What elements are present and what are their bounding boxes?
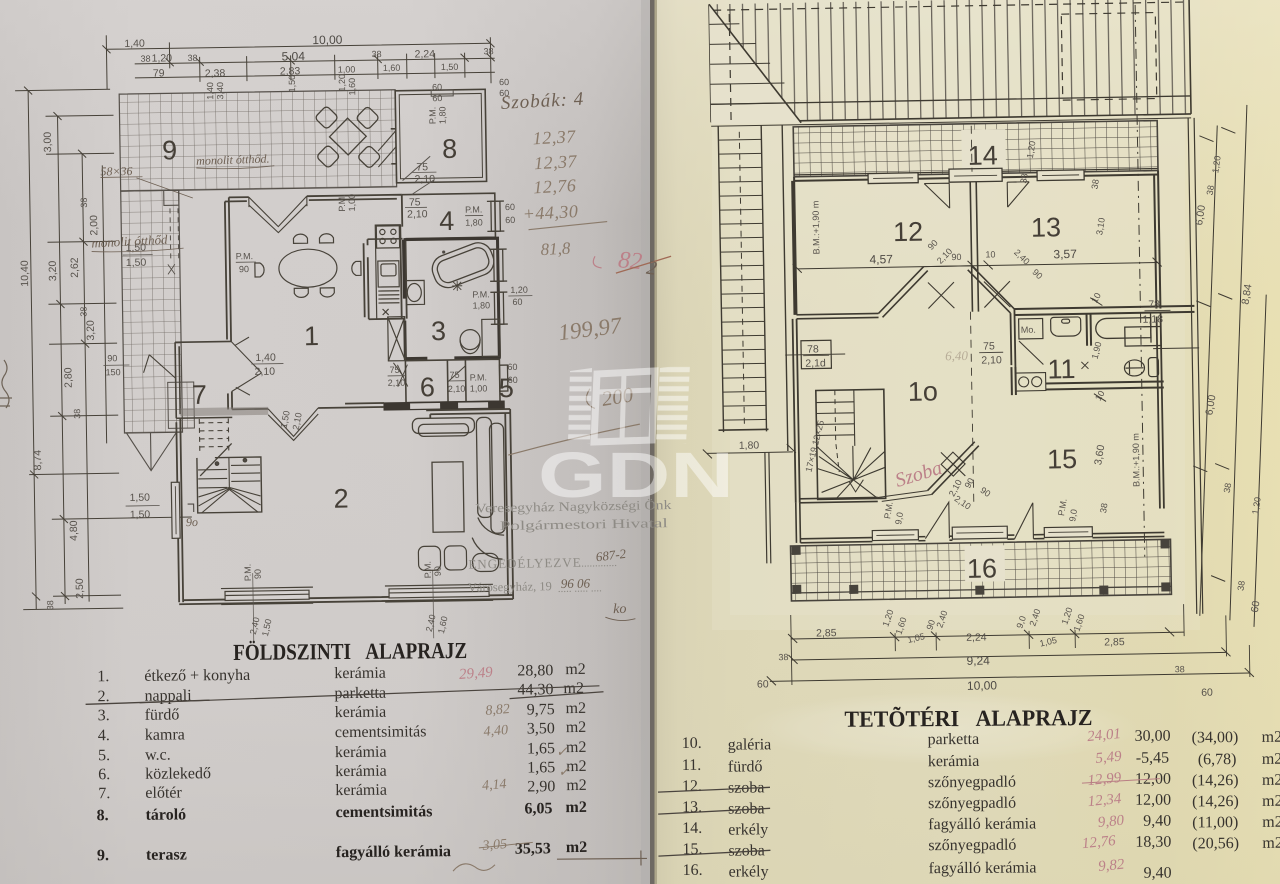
svg-text:38: 38	[1089, 178, 1100, 189]
svg-text:8,74: 8,74	[32, 450, 44, 471]
svg-text:150: 150	[105, 367, 120, 377]
svg-text:5,04: 5,04	[281, 49, 305, 63]
svg-text:12,37: 12,37	[532, 126, 576, 148]
svg-text:4: 4	[439, 206, 455, 236]
svg-text:cementsimitás: cementsimitás	[335, 803, 432, 821]
svg-text:2.: 2.	[97, 688, 109, 705]
svg-text:1,20: 1,20	[337, 74, 347, 92]
svg-text:38: 38	[1175, 664, 1185, 674]
svg-text:9,40: 9,40	[1143, 813, 1171, 830]
svg-text:4,14: 4,14	[481, 777, 507, 794]
svg-text:90: 90	[107, 353, 117, 363]
svg-text:60: 60	[505, 202, 515, 212]
svg-text:3,20: 3,20	[47, 260, 59, 281]
svg-text:9,40: 9,40	[1144, 865, 1172, 882]
svg-text:38: 38	[79, 198, 89, 208]
svg-text:12,34: 12,34	[1087, 791, 1123, 810]
svg-text:1,20: 1,20	[152, 52, 173, 64]
svg-text:kerámia: kerámia	[335, 782, 387, 799]
svg-text:16.: 16.	[682, 862, 702, 879]
svg-text:60: 60	[507, 362, 517, 372]
svg-text:Szobák: 4: Szobák: 4	[500, 89, 584, 114]
svg-text:3,00: 3,00	[42, 132, 54, 153]
svg-text:2,85: 2,85	[1104, 636, 1125, 648]
svg-text:4.: 4.	[98, 727, 110, 744]
svg-text:2,1d: 2,1d	[805, 357, 826, 369]
svg-text:kerámia: kerámia	[928, 753, 980, 770]
svg-text:81,8: 81,8	[540, 239, 571, 260]
svg-text:Polgármestori Hivatal: Polgármestori Hivatal	[500, 515, 669, 533]
svg-text:Városegyház, 19: Városegyház, 19	[468, 579, 552, 594]
svg-text:5,49: 5,49	[1095, 749, 1123, 767]
svg-text:9.: 9.	[97, 847, 109, 864]
svg-text:fagyálló kerámia: fagyálló kerámia	[928, 859, 1036, 877]
svg-text:2,00: 2,00	[88, 215, 100, 236]
svg-text:(34,00): (34,00)	[1192, 729, 1239, 746]
svg-text:60: 60	[1249, 600, 1263, 614]
svg-text:1,65: 1,65	[527, 740, 555, 757]
svg-text:m2: m2	[1262, 835, 1280, 852]
svg-text:9,82: 9,82	[1097, 857, 1125, 875]
svg-text:1,50: 1,50	[129, 492, 150, 504]
svg-text:1,40: 1,40	[255, 352, 276, 364]
svg-text:18,30: 18,30	[1135, 834, 1171, 851]
svg-text:kamra: kamra	[145, 726, 185, 743]
svg-text:11: 11	[1047, 354, 1076, 384]
svg-text:(20,56): (20,56)	[1192, 835, 1239, 852]
svg-text:2: 2	[333, 484, 349, 514]
svg-text:38: 38	[188, 53, 198, 63]
svg-text:60: 60	[1201, 687, 1213, 699]
svg-text:38: 38	[1205, 184, 1216, 195]
svg-text:9,0: 9,0	[893, 511, 905, 525]
svg-text:3.: 3.	[98, 707, 110, 724]
svg-text:Mo.: Mo.	[1021, 325, 1036, 335]
svg-text:m2: m2	[566, 839, 587, 856]
svg-text:ko: ko	[613, 602, 626, 617]
svg-text:erkély: erkély	[728, 821, 768, 838]
svg-text:75: 75	[389, 365, 399, 375]
svg-text:erkély: erkély	[729, 863, 769, 880]
svg-text:15: 15	[1047, 444, 1078, 475]
svg-text:P.M.: P.M.	[427, 107, 437, 124]
svg-text:12,37: 12,37	[534, 151, 578, 173]
svg-text:m2: m2	[565, 661, 586, 678]
svg-text:1,00: 1,00	[338, 64, 356, 74]
svg-text:..... ..... ....: ..... ..... ....	[558, 582, 602, 595]
svg-text:38: 38	[483, 46, 493, 56]
svg-text:tároló: tároló	[145, 806, 186, 823]
svg-text:1,65: 1,65	[527, 759, 555, 776]
svg-text:2,80: 2,80	[62, 367, 74, 388]
svg-text:90: 90	[433, 566, 443, 576]
svg-text:1o: 1o	[908, 376, 939, 407]
svg-text:✓: ✓	[556, 745, 568, 760]
svg-text:étkező + konyha: étkező + konyha	[144, 667, 250, 685]
svg-text:2,90: 2,90	[527, 778, 555, 795]
svg-text:9,0: 9,0	[1067, 508, 1079, 522]
svg-text:10,40: 10,40	[19, 260, 31, 287]
svg-text:1.: 1.	[97, 668, 109, 685]
svg-text:10.: 10.	[682, 735, 702, 752]
svg-text:3: 3	[431, 316, 447, 346]
svg-text:P.M.: P.M.	[465, 204, 482, 214]
svg-text:24,01: 24,01	[1087, 726, 1122, 745]
svg-text:ENGEDÉLYEZVE: ENGEDÉLYEZVE	[468, 555, 581, 572]
svg-text:12.: 12.	[682, 778, 702, 795]
svg-text:9,75: 9,75	[527, 701, 555, 718]
svg-text:8,82: 8,82	[485, 702, 511, 719]
svg-text:szőnyegpadló: szőnyegpadló	[928, 795, 1016, 813]
svg-text:m2: m2	[1262, 793, 1280, 810]
svg-text:cementsimitás: cementsimitás	[335, 723, 427, 741]
svg-text:4,57: 4,57	[869, 252, 893, 266]
svg-text:fürdő: fürdő	[145, 706, 180, 723]
svg-text:60: 60	[508, 375, 518, 385]
svg-text:3,57: 3,57	[1053, 247, 1077, 261]
svg-text:fürdő: fürdő	[728, 758, 763, 775]
svg-text:1,80: 1,80	[437, 106, 447, 124]
svg-text:79: 79	[153, 67, 165, 79]
svg-text:14.: 14.	[682, 820, 702, 837]
svg-text:-5,45: -5,45	[1136, 750, 1169, 767]
svg-text:FÖLDSZINTI ALAPRAJZ: FÖLDSZINTI ALAPRAJZ	[233, 638, 467, 665]
svg-text:38: 38	[371, 49, 381, 59]
svg-text:m2: m2	[1262, 729, 1280, 746]
svg-text:9: 9	[162, 135, 178, 165]
svg-text:75: 75	[409, 196, 421, 208]
svg-text:6: 6	[420, 372, 436, 402]
svg-text:10,00: 10,00	[312, 33, 343, 47]
svg-text:2,85: 2,85	[816, 627, 837, 639]
svg-text:2,10: 2,10	[448, 384, 466, 394]
svg-text:B.M.:+1,90 m: B.M.:+1,90 m	[1131, 433, 1142, 487]
svg-text:12,00: 12,00	[1135, 792, 1171, 809]
svg-text:szőnyegpadló: szőnyegpadló	[928, 837, 1016, 855]
svg-text:1,00: 1,00	[470, 383, 488, 393]
svg-text:35,53: 35,53	[515, 840, 551, 857]
svg-text:1,50: 1,50	[130, 509, 151, 521]
svg-text:10,00: 10,00	[967, 678, 998, 693]
svg-text:fagyálló kerámia: fagyálló kerámia	[928, 815, 1036, 833]
svg-text:2,24: 2,24	[966, 632, 987, 644]
svg-text:29,49: 29,49	[458, 664, 493, 683]
svg-text:P.M.: P.M.	[423, 561, 433, 578]
svg-text:+44,30: +44,30	[522, 201, 579, 224]
svg-text:13.: 13.	[682, 799, 702, 816]
svg-text:38: 38	[1018, 173, 1029, 184]
svg-text:2,10: 2,10	[254, 366, 275, 378]
svg-text:m2: m2	[1262, 751, 1280, 768]
svg-text:m2: m2	[566, 719, 587, 736]
svg-text:1,80: 1,80	[739, 440, 760, 452]
svg-text:előtér: előtér	[145, 784, 182, 801]
svg-text:6.: 6.	[98, 766, 110, 783]
svg-text:terasz: terasz	[146, 846, 187, 863]
svg-text:2,10: 2,10	[981, 354, 1002, 366]
svg-text:fagyálló kerámia: fagyálló kerámia	[336, 843, 451, 861]
svg-text:m2: m2	[1262, 814, 1280, 831]
svg-text:3,20: 3,20	[85, 320, 97, 341]
svg-text:8.: 8.	[96, 807, 108, 824]
svg-text:60: 60	[505, 215, 515, 225]
svg-text:10: 10	[985, 249, 995, 259]
svg-text:P.M.: P.M.	[236, 251, 253, 261]
svg-text:m2: m2	[565, 799, 586, 816]
svg-text:78: 78	[1148, 298, 1160, 310]
svg-text:38: 38	[1235, 580, 1246, 591]
svg-text:9,80: 9,80	[1097, 813, 1125, 831]
svg-text:1,18: 1,18	[1143, 313, 1164, 325]
svg-text:(14,26): (14,26)	[1192, 772, 1239, 789]
svg-text:60: 60	[757, 678, 769, 690]
svg-text:2,10: 2,10	[388, 378, 406, 388]
svg-text:9o: 9o	[186, 515, 198, 529]
svg-text:1,80: 1,80	[472, 300, 490, 310]
svg-text:m2: m2	[1262, 772, 1280, 789]
svg-text:2,38: 2,38	[205, 67, 226, 79]
svg-text:TETÕTÉRI ALAPRAJZ: TETÕTÉRI ALAPRAJZ	[844, 705, 1092, 732]
svg-text:6,05: 6,05	[524, 800, 552, 817]
svg-text:28,80: 28,80	[517, 662, 553, 679]
svg-text:(14,26): (14,26)	[1192, 793, 1239, 810]
svg-text:B.M.:+1,90 m: B.M.:+1,90 m	[811, 201, 822, 255]
svg-text:galéria: galéria	[728, 736, 772, 753]
svg-text:w.c.: w.c.	[145, 747, 171, 764]
svg-text:2,24: 2,24	[414, 48, 435, 60]
svg-text:60: 60	[499, 77, 509, 87]
svg-text:1,80: 1,80	[465, 217, 483, 227]
svg-text:2,10: 2,10	[414, 173, 435, 185]
svg-text:60: 60	[512, 297, 522, 307]
svg-text:1,20: 1,20	[510, 285, 528, 295]
svg-text:90: 90	[253, 569, 263, 579]
svg-text:8: 8	[442, 134, 458, 164]
svg-text:38: 38	[72, 409, 82, 419]
svg-text:1,50: 1,50	[287, 75, 297, 93]
svg-text:közlekedő: közlekedő	[145, 765, 211, 783]
svg-text:2,62: 2,62	[69, 257, 81, 278]
svg-text:5.: 5.	[98, 747, 110, 764]
svg-text:1,60: 1,60	[383, 63, 401, 73]
svg-text:38: 38	[141, 54, 151, 64]
svg-text:GDN: GDN	[538, 439, 734, 511]
svg-text:38: 38	[79, 307, 89, 317]
svg-text:12,99: 12,99	[1087, 770, 1123, 789]
svg-text:3,50: 3,50	[527, 720, 555, 737]
svg-text:(11,00): (11,00)	[1192, 814, 1238, 831]
svg-text:4,40: 4,40	[483, 723, 509, 740]
svg-text:kerámia: kerámia	[335, 704, 387, 721]
svg-text:m2: m2	[566, 700, 587, 717]
svg-text:12,76: 12,76	[533, 175, 577, 197]
svg-text:12,76: 12,76	[1081, 833, 1117, 852]
svg-text:P.M.: P.M.	[337, 194, 347, 211]
svg-text:P.M.: P.M.	[243, 564, 253, 581]
svg-text:P.M.: P.M.	[470, 372, 487, 382]
svg-text:1,00: 1,00	[347, 194, 357, 212]
svg-text:9,24: 9,24	[966, 654, 990, 668]
svg-text:1,50: 1,50	[441, 62, 459, 72]
svg-text:6,40: 6,40	[945, 348, 969, 363]
svg-text:✓: ✓	[558, 765, 570, 780]
svg-text:kerámia: kerámia	[334, 665, 386, 682]
svg-text:38: 38	[778, 652, 788, 662]
svg-text:38: 38	[1222, 482, 1233, 493]
svg-text:16: 16	[967, 553, 998, 584]
svg-text:2,50: 2,50	[74, 578, 86, 599]
svg-text:7: 7	[192, 380, 208, 410]
svg-text:12: 12	[893, 217, 924, 248]
svg-text:30,00: 30,00	[1135, 728, 1171, 745]
svg-text:P.M.: P.M.	[472, 289, 489, 299]
svg-text:(6,78): (6,78)	[1198, 751, 1237, 768]
svg-text:m2: m2	[566, 739, 587, 756]
svg-text:78: 78	[807, 343, 819, 355]
svg-text:15.: 15.	[682, 841, 702, 858]
svg-text:1,40: 1,40	[124, 38, 145, 50]
svg-text:1: 1	[304, 321, 320, 351]
svg-text:parketta: parketta	[928, 731, 980, 748]
svg-text:75: 75	[983, 340, 995, 352]
svg-text:11.: 11.	[682, 757, 702, 774]
svg-text:kerámia: kerámia	[335, 763, 387, 780]
svg-text:4,80: 4,80	[68, 520, 80, 541]
svg-text:200: 200	[600, 382, 635, 411]
svg-text:38: 38	[1098, 502, 1109, 513]
svg-text:2,10: 2,10	[407, 208, 428, 220]
svg-text:38: 38	[45, 600, 55, 610]
svg-text:7.: 7.	[98, 785, 110, 802]
svg-text:kerámia: kerámia	[335, 744, 387, 761]
svg-text:13: 13	[1031, 212, 1062, 243]
svg-text:75: 75	[450, 370, 460, 380]
svg-text:szőnyegpadló: szőnyegpadló	[928, 774, 1016, 792]
svg-text:90: 90	[239, 264, 249, 274]
